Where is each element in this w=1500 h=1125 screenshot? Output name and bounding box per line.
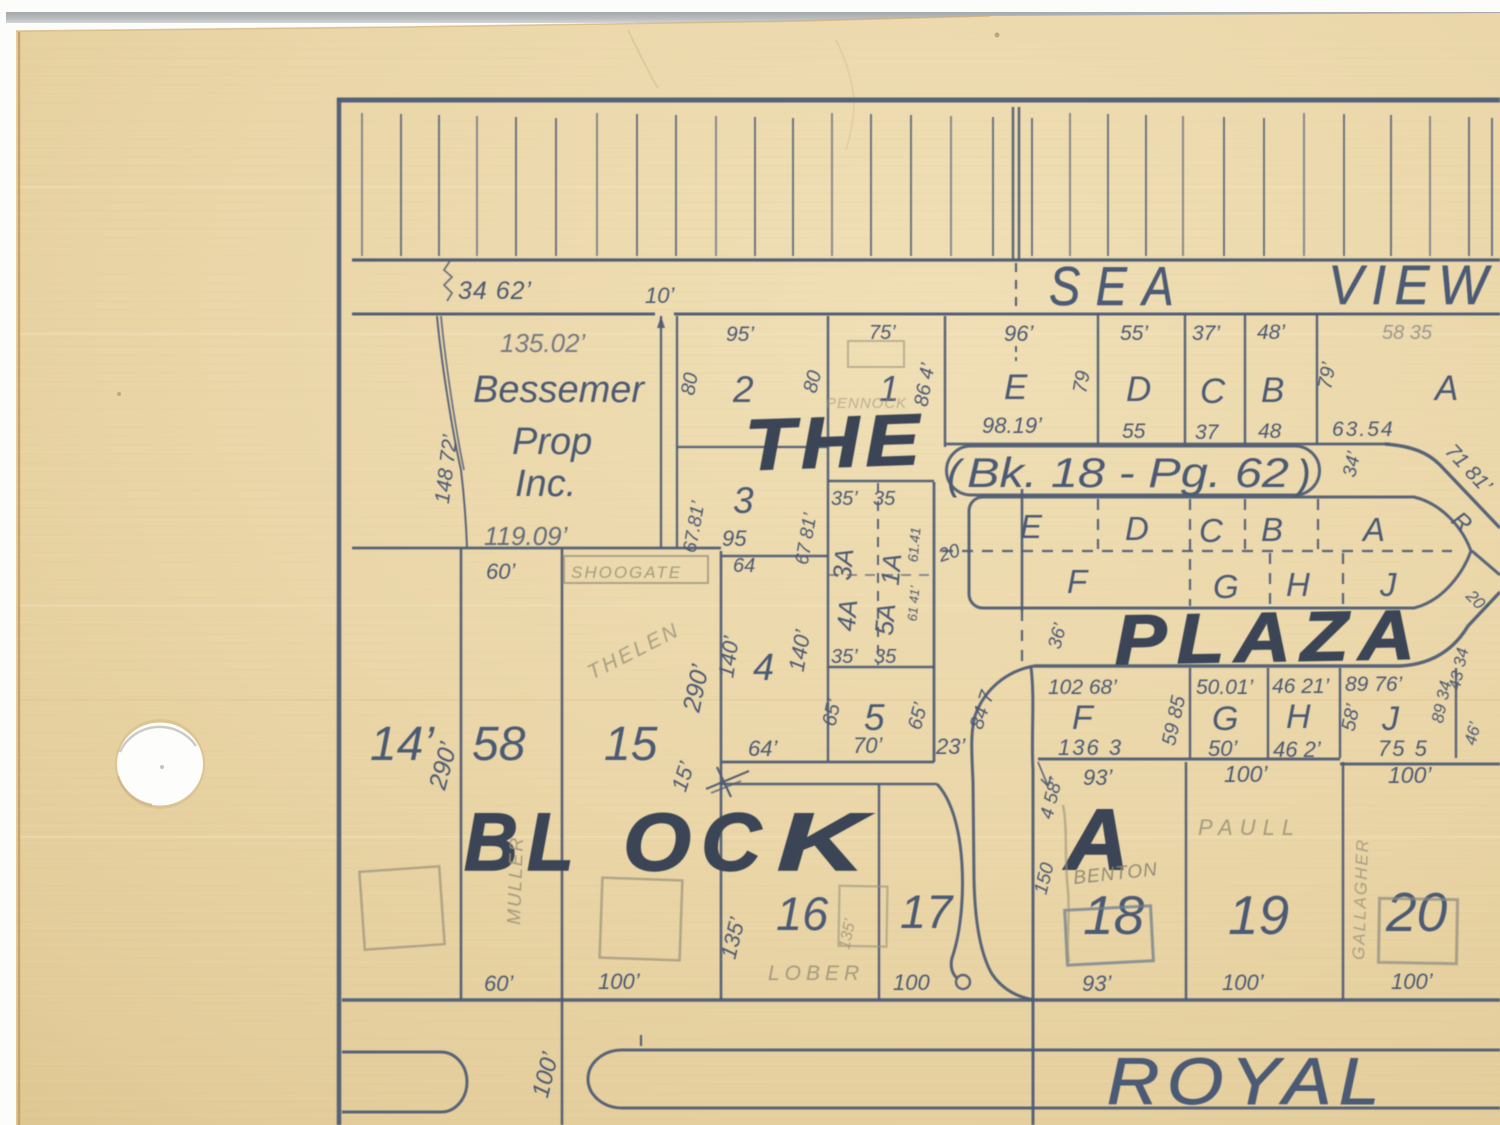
svg-text:A: A [1433, 369, 1458, 408]
svg-text:100’: 100’ [1222, 970, 1265, 995]
svg-text:37’: 37’ [1192, 322, 1220, 345]
svg-text:119.09’: 119.09’ [484, 521, 569, 551]
svg-text:LOBER: LOBER [768, 962, 864, 985]
svg-text:100’: 100’ [598, 969, 641, 994]
svg-text:G: G [1212, 700, 1238, 738]
svg-text:SEA: SEA [1049, 255, 1189, 317]
svg-text:75 5: 75 5 [1378, 736, 1429, 761]
svg-text:MULLER: MULLER [504, 835, 528, 925]
svg-text:63.54: 63.54 [1332, 418, 1395, 441]
svg-text:102 68’: 102 68’ [1048, 676, 1117, 699]
svg-text:Bk. 18 - Pg. 62: Bk. 18 - Pg. 62 [967, 449, 1289, 496]
svg-text:61.41: 61.41 [905, 526, 924, 562]
svg-text:64’: 64’ [748, 736, 778, 761]
svg-text:46 21’: 46 21’ [1272, 675, 1330, 698]
svg-text:98.19’: 98.19’ [982, 413, 1043, 438]
svg-text:48: 48 [1258, 420, 1282, 443]
svg-text:64: 64 [733, 555, 755, 577]
svg-text:50’: 50’ [1208, 736, 1238, 761]
svg-text:55’: 55’ [1120, 322, 1148, 345]
svg-text:135.02’: 135.02’ [500, 328, 587, 358]
svg-text:F: F [1067, 563, 1089, 600]
svg-text:2: 2 [732, 369, 754, 410]
svg-text:ROYAL: ROYAL [1107, 1044, 1387, 1118]
svg-text:93’: 93’ [1082, 971, 1112, 996]
svg-text:PLAZA: PLAZA [1114, 596, 1425, 679]
svg-text:35’: 35’ [831, 646, 858, 668]
svg-text:5: 5 [864, 697, 885, 738]
svg-text:19: 19 [1228, 884, 1289, 946]
svg-text:61 41’: 61 41’ [905, 584, 923, 622]
svg-text:23’: 23’ [935, 734, 966, 759]
svg-text:K: K [777, 797, 874, 888]
svg-text:B: B [1261, 511, 1283, 548]
svg-text:15: 15 [604, 718, 658, 771]
svg-text:17: 17 [900, 885, 954, 938]
svg-text:95: 95 [722, 526, 747, 551]
svg-text:J: J [1381, 700, 1400, 738]
svg-text:48’: 48’ [1257, 321, 1285, 344]
svg-text:B: B [1261, 371, 1284, 410]
svg-text:PAULL: PAULL [1198, 815, 1301, 840]
svg-text:THE: THE [744, 400, 927, 486]
svg-text:34 62’: 34 62’ [458, 277, 532, 305]
svg-text:1A: 1A [875, 552, 908, 586]
svg-text:A: A [1361, 511, 1385, 548]
svg-text:20: 20 [1385, 881, 1448, 943]
svg-text:100’: 100’ [1391, 969, 1434, 994]
svg-text:89 76’: 89 76’ [1345, 673, 1403, 696]
svg-text:3: 3 [733, 480, 754, 521]
svg-text:3A: 3A [827, 547, 860, 581]
svg-text:Prop: Prop [512, 421, 592, 463]
svg-text:D: D [1125, 510, 1149, 547]
svg-text:37: 37 [1195, 421, 1220, 444]
svg-text:14’: 14’ [370, 718, 435, 771]
svg-text:C: C [1199, 512, 1224, 549]
svg-text:100: 100 [893, 970, 930, 995]
svg-text:Inc.: Inc. [515, 463, 576, 505]
svg-text:16: 16 [776, 887, 829, 940]
svg-text:35: 35 [873, 488, 896, 510]
svg-text:10’: 10’ [645, 283, 675, 308]
svg-text:L: L [527, 797, 574, 888]
svg-text:Bessemer: Bessemer [473, 369, 645, 411]
svg-text:80: 80 [677, 371, 703, 397]
svg-text:4A: 4A [831, 598, 864, 632]
svg-text:F: F [1072, 699, 1095, 737]
svg-text:60’: 60’ [484, 971, 514, 996]
svg-text:95’: 95’ [726, 323, 754, 346]
svg-text:18: 18 [1083, 884, 1145, 946]
svg-text:4: 4 [753, 647, 774, 689]
svg-text:96’: 96’ [1004, 321, 1034, 346]
svg-text:50.01’: 50.01’ [1196, 676, 1254, 699]
svg-text:O: O [623, 797, 691, 888]
svg-text:93’: 93’ [1083, 765, 1113, 790]
svg-text:5A: 5A [869, 602, 902, 636]
svg-text:46 2’: 46 2’ [1273, 737, 1322, 762]
svg-text:58 35: 58 35 [1382, 322, 1433, 344]
svg-text:E: E [1004, 368, 1028, 407]
svg-text:VIEW: VIEW [1328, 253, 1496, 316]
svg-text:C: C [1200, 372, 1226, 411]
svg-text:H: H [1286, 698, 1311, 736]
svg-text:100’: 100’ [1224, 761, 1268, 787]
svg-text:35: 35 [874, 646, 897, 668]
svg-text:55: 55 [1122, 420, 1146, 443]
svg-text:58: 58 [472, 718, 526, 771]
svg-text:E: E [1020, 508, 1043, 545]
svg-text:SHOOGATE: SHOOGATE [571, 563, 682, 582]
svg-text:D: D [1126, 370, 1151, 409]
svg-text:C: C [701, 797, 763, 888]
svg-text:35’: 35’ [831, 488, 858, 510]
svg-text:100’: 100’ [1388, 762, 1432, 788]
svg-text:79: 79 [1069, 369, 1095, 395]
svg-text:136 3: 136 3 [1058, 735, 1123, 760]
svg-text:PENNOCK: PENNOCK [826, 395, 907, 412]
svg-text:60’: 60’ [486, 559, 516, 584]
svg-text:70’: 70’ [853, 733, 883, 758]
svg-text:79’: 79’ [1314, 360, 1340, 391]
